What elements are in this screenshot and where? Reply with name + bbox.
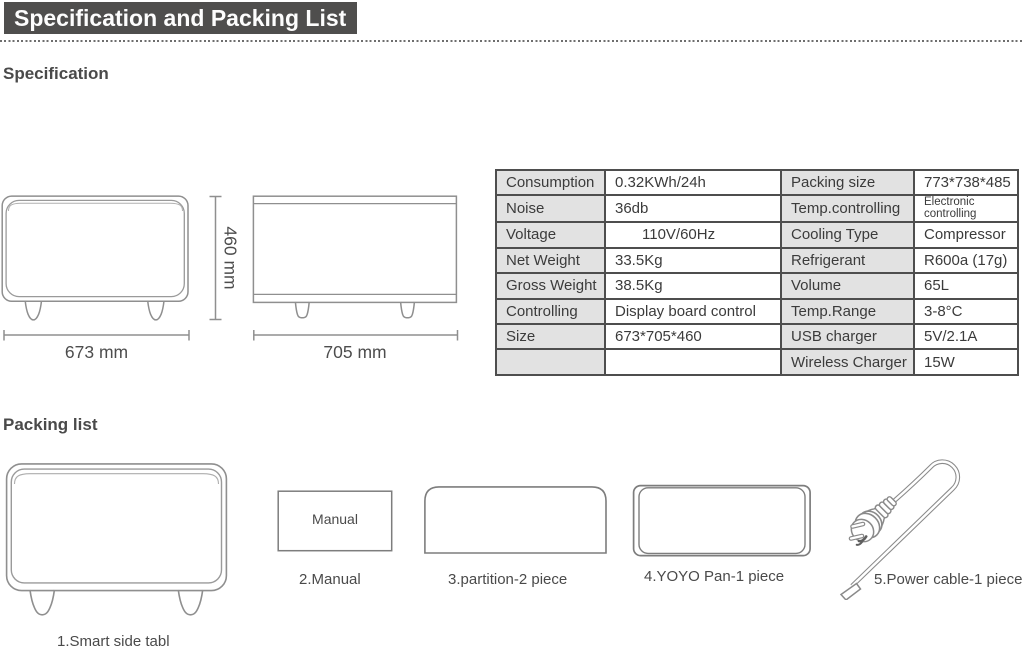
svg-text:673 mm: 673 mm bbox=[65, 342, 128, 362]
svg-text:705 mm: 705 mm bbox=[323, 342, 386, 362]
svg-text:Manual: Manual bbox=[312, 511, 358, 527]
svg-text:460 mm: 460 mm bbox=[220, 226, 240, 289]
